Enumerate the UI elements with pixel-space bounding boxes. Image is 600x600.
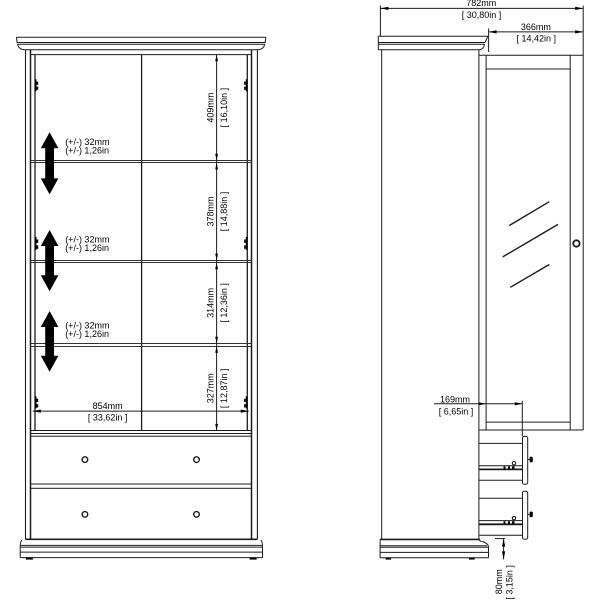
svg-text:854mm: 854mm (93, 401, 123, 411)
svg-text:(+/-) 1,26in: (+/-) 1,26in (65, 243, 109, 253)
svg-text:[ 16,10in ]: [ 16,10in ] (219, 88, 229, 128)
svg-text:409mm: 409mm (205, 93, 215, 123)
svg-text:782mm: 782mm (466, 0, 496, 8)
svg-text:[ 14,88in ]: [ 14,88in ] (219, 192, 229, 232)
svg-text:327mm: 327mm (205, 373, 215, 403)
svg-text:80mm: 80mm (494, 569, 504, 594)
svg-text:[ 12,36in ]: [ 12,36in ] (219, 283, 229, 323)
svg-text:(+/-) 1,26in: (+/-) 1,26in (65, 329, 109, 339)
svg-text:[ 14,42in ]: [ 14,42in ] (517, 33, 557, 43)
svg-text:378mm: 378mm (205, 196, 215, 226)
svg-text:[ 33,62in ]: [ 33,62in ] (88, 412, 128, 422)
svg-text:(+/-) 1,26in: (+/-) 1,26in (65, 145, 109, 155)
svg-text:366mm: 366mm (521, 22, 551, 32)
svg-text:[ 30,80in ]: [ 30,80in ] (462, 10, 502, 20)
svg-text:314mm: 314mm (205, 288, 215, 318)
svg-text:[ 3,15in ]: [ 3,15in ] (505, 565, 515, 600)
svg-text:[ 6,65in ]: [ 6,65in ] (439, 407, 474, 417)
svg-text:169mm: 169mm (440, 394, 470, 404)
svg-text:[ 12,87in ]: [ 12,87in ] (219, 369, 229, 409)
